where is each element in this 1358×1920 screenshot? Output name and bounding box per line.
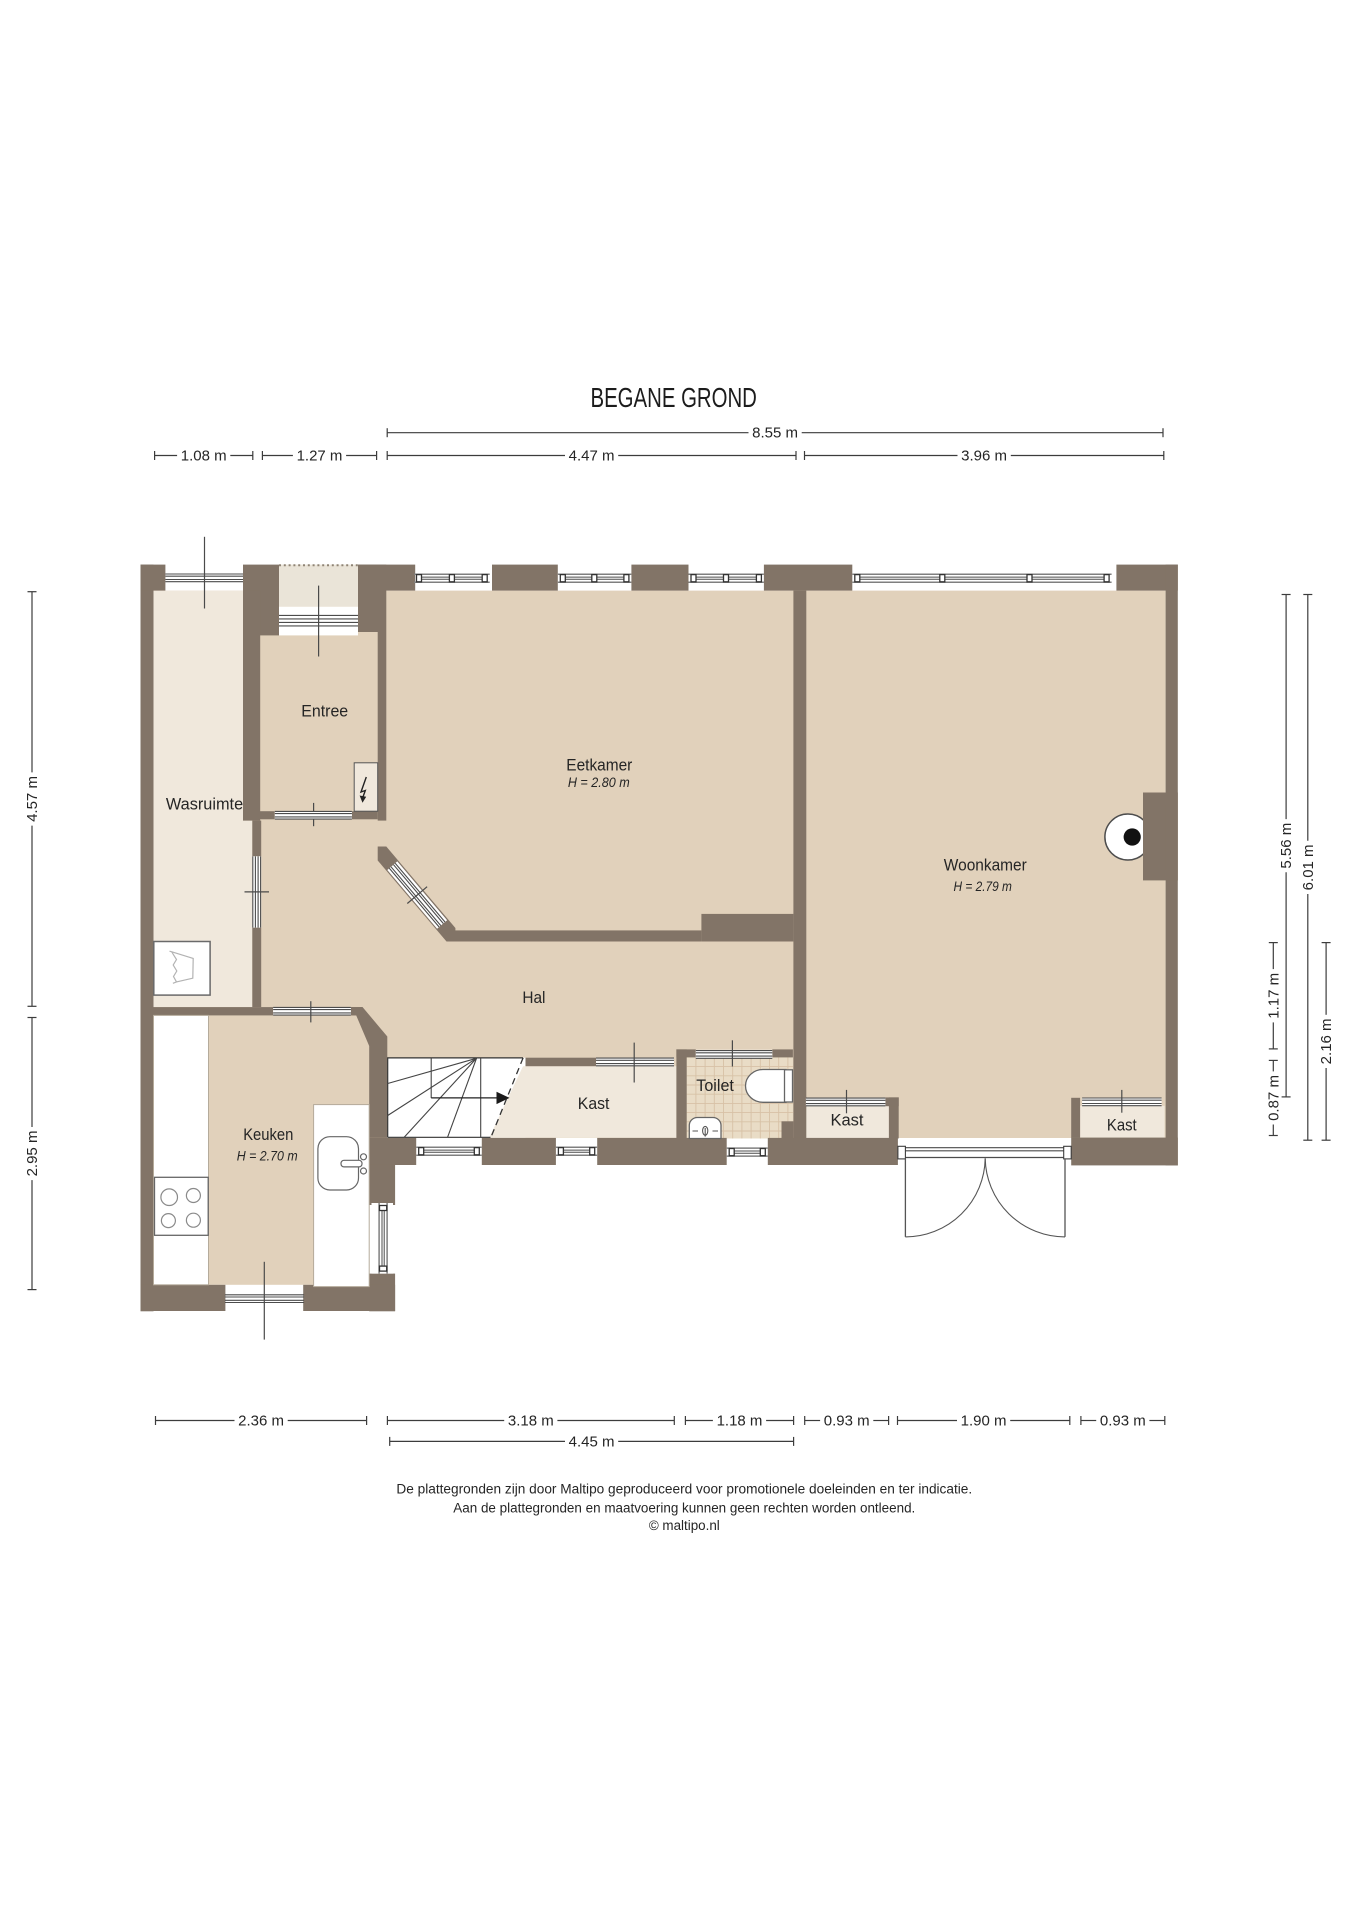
svg-text:© maltipo.nl: © maltipo.nl (649, 1518, 720, 1533)
svg-text:1.08 m: 1.08 m (181, 448, 227, 465)
svg-text:Hal: Hal (522, 988, 545, 1007)
svg-text:0.87 m: 0.87 m (1265, 1075, 1282, 1121)
svg-text:Entree: Entree (301, 702, 348, 721)
svg-text:Wasruimte: Wasruimte (166, 795, 243, 814)
svg-text:1.17 m: 1.17 m (1265, 973, 1282, 1019)
svg-text:Eetkamer: Eetkamer (566, 756, 632, 775)
svg-text:BEGANE GROND: BEGANE GROND (591, 382, 757, 413)
svg-text:1.90 m: 1.90 m (961, 1413, 1007, 1430)
svg-text:1.27 m: 1.27 m (297, 448, 343, 465)
svg-text:Woonkamer: Woonkamer (944, 856, 1027, 875)
svg-text:Keuken: Keuken (243, 1125, 293, 1144)
svg-text:0.93 m: 0.93 m (1100, 1413, 1146, 1430)
svg-text:3.96 m: 3.96 m (961, 448, 1007, 465)
svg-text:5.56 m: 5.56 m (1278, 823, 1295, 869)
svg-text:H = 2.70 m: H = 2.70 m (237, 1148, 298, 1164)
svg-text:Aan de plattegronden en maatvo: Aan de plattegronden en maatvoering kunn… (453, 1501, 915, 1516)
svg-text:4.45 m: 4.45 m (569, 1433, 615, 1450)
svg-text:2.36 m: 2.36 m (238, 1413, 284, 1430)
svg-text:Kast: Kast (1107, 1116, 1137, 1135)
svg-text:2.16 m: 2.16 m (1318, 1018, 1335, 1064)
svg-text:4.57 m: 4.57 m (24, 776, 41, 822)
svg-text:3.18 m: 3.18 m (508, 1413, 554, 1430)
svg-text:0.93 m: 0.93 m (824, 1413, 870, 1430)
svg-text:Kast: Kast (578, 1094, 610, 1113)
svg-text:4.47 m: 4.47 m (569, 448, 615, 465)
svg-text:De plattegronden zijn door Mal: De plattegronden zijn door Maltipo gepro… (396, 1482, 972, 1497)
svg-text:6.01 m: 6.01 m (1300, 844, 1317, 890)
svg-text:H = 2.80 m: H = 2.80 m (568, 774, 630, 790)
svg-text:1.18 m: 1.18 m (717, 1413, 763, 1430)
svg-text:2.95 m: 2.95 m (24, 1131, 41, 1177)
svg-text:Kast: Kast (830, 1111, 863, 1130)
svg-text:Toilet: Toilet (696, 1076, 734, 1095)
svg-text:8.55 m: 8.55 m (752, 425, 798, 442)
svg-text:H = 2.79 m: H = 2.79 m (954, 878, 1013, 894)
